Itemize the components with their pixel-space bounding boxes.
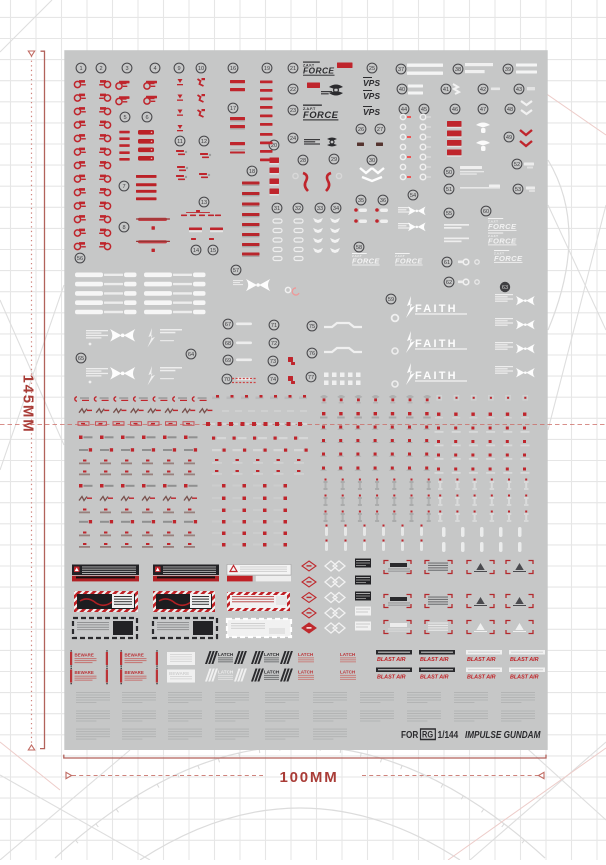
- svg-text:BLAST AIR: BLAST AIR: [467, 657, 496, 663]
- svg-text:27: 27: [377, 127, 383, 133]
- svg-text:FAITH: FAITH: [415, 338, 458, 350]
- svg-text:37: 37: [398, 67, 404, 73]
- svg-text:BEWARE: BEWARE: [75, 653, 94, 658]
- svg-text:75: 75: [309, 324, 315, 330]
- svg-text:LATCH: LATCH: [218, 669, 234, 674]
- svg-text:4: 4: [153, 66, 156, 72]
- svg-text:76: 76: [309, 351, 315, 357]
- svg-text:1: 1: [79, 66, 82, 72]
- svg-text:BEWARE: BEWARE: [169, 671, 189, 676]
- svg-text:5: 5: [123, 115, 126, 121]
- svg-text:18: 18: [249, 169, 255, 175]
- svg-text:72: 72: [271, 341, 277, 347]
- svg-text:73: 73: [270, 359, 276, 365]
- svg-text:36: 36: [380, 198, 386, 204]
- svg-text:46: 46: [452, 107, 458, 113]
- svg-text:45: 45: [421, 107, 427, 113]
- svg-text:34: 34: [333, 206, 339, 212]
- svg-text:48: 48: [507, 107, 513, 113]
- svg-text:59: 59: [388, 297, 394, 303]
- svg-text:BEWARE: BEWARE: [125, 653, 144, 658]
- svg-text:42: 42: [480, 87, 486, 93]
- svg-text:12: 12: [201, 139, 207, 145]
- svg-text:FORCE: FORCE: [488, 222, 517, 231]
- svg-text:FORCE: FORCE: [352, 257, 380, 266]
- svg-text:BLAST AIR: BLAST AIR: [420, 657, 449, 663]
- svg-text:56: 56: [77, 256, 83, 262]
- svg-text:28: 28: [300, 158, 306, 164]
- svg-text:67: 67: [225, 322, 231, 328]
- svg-text:51: 51: [446, 187, 452, 193]
- svg-text:57: 57: [233, 268, 239, 274]
- svg-text:9: 9: [177, 66, 180, 72]
- svg-text:23: 23: [290, 108, 296, 114]
- svg-text:10: 10: [198, 66, 204, 72]
- svg-text:17: 17: [230, 106, 236, 112]
- svg-text:IMPULSE GUNDAM: IMPULSE GUNDAM: [465, 728, 541, 740]
- svg-text:19: 19: [264, 66, 270, 72]
- svg-text:26: 26: [358, 127, 364, 133]
- svg-text:BLAST AIR: BLAST AIR: [377, 657, 406, 663]
- svg-text:52: 52: [514, 162, 520, 168]
- svg-text:61: 61: [444, 260, 450, 266]
- svg-text:64: 64: [188, 352, 194, 358]
- svg-text:70: 70: [224, 377, 230, 383]
- svg-text:BLAST AIR: BLAST AIR: [420, 675, 449, 681]
- svg-text:15: 15: [210, 248, 216, 254]
- svg-text:49: 49: [506, 135, 512, 141]
- svg-text:39: 39: [505, 67, 511, 73]
- svg-text:FORCE: FORCE: [303, 66, 334, 76]
- svg-text:1/144: 1/144: [438, 728, 459, 740]
- svg-text:35: 35: [358, 198, 364, 204]
- svg-text:VPS: VPS: [363, 78, 380, 88]
- svg-text:2: 2: [99, 66, 102, 72]
- svg-text:LATCH: LATCH: [298, 669, 314, 674]
- svg-text:65: 65: [78, 356, 84, 362]
- svg-text:FORCE: FORCE: [488, 236, 517, 245]
- svg-text:VPS: VPS: [363, 91, 380, 101]
- svg-text:RG: RG: [422, 729, 433, 740]
- svg-text:3: 3: [125, 66, 128, 72]
- svg-text:LATCH: LATCH: [264, 669, 280, 674]
- svg-text:LATCH: LATCH: [218, 652, 234, 657]
- svg-text:BLAST AIR: BLAST AIR: [510, 675, 539, 681]
- svg-text:47: 47: [480, 107, 486, 113]
- svg-text:16: 16: [230, 66, 236, 72]
- svg-text:FAITH: FAITH: [415, 303, 458, 315]
- svg-text:29: 29: [331, 157, 337, 163]
- svg-text:31: 31: [274, 206, 280, 212]
- svg-text:LATCH: LATCH: [298, 652, 314, 657]
- svg-text:7: 7: [122, 184, 125, 190]
- svg-text:44: 44: [401, 107, 407, 113]
- svg-text:69: 69: [225, 358, 231, 364]
- svg-text:VPS: VPS: [363, 107, 380, 117]
- svg-text:53: 53: [515, 187, 521, 193]
- svg-text:41: 41: [443, 87, 449, 93]
- svg-text:FOR: FOR: [401, 728, 418, 740]
- svg-text:BEWARE: BEWARE: [125, 670, 144, 675]
- svg-text:FAITH: FAITH: [415, 370, 458, 382]
- svg-text:LATCH: LATCH: [340, 652, 356, 657]
- svg-text:30: 30: [369, 158, 375, 164]
- svg-text:21: 21: [290, 66, 296, 72]
- svg-text:33: 33: [317, 206, 323, 212]
- svg-text:FORCE: FORCE: [395, 257, 423, 266]
- svg-text:LATCH: LATCH: [340, 669, 356, 674]
- svg-text:24: 24: [290, 136, 296, 142]
- svg-text:43: 43: [516, 87, 522, 93]
- svg-text:11: 11: [177, 139, 183, 145]
- svg-text:60: 60: [483, 209, 489, 215]
- svg-text:BLAST AIR: BLAST AIR: [377, 675, 406, 681]
- svg-text:25: 25: [369, 66, 375, 72]
- svg-text:63: 63: [502, 285, 508, 291]
- svg-text:71: 71: [271, 323, 277, 329]
- svg-text:22: 22: [290, 87, 296, 93]
- svg-text:62: 62: [446, 280, 452, 286]
- svg-text:LATCH: LATCH: [264, 652, 280, 657]
- svg-text:14: 14: [193, 248, 199, 254]
- svg-text:BLAST AIR: BLAST AIR: [510, 657, 539, 663]
- svg-text:54: 54: [410, 193, 416, 199]
- svg-text:13: 13: [201, 200, 207, 206]
- svg-text:68: 68: [225, 341, 231, 347]
- svg-text:8: 8: [122, 225, 125, 231]
- svg-text:100MM: 100MM: [279, 769, 338, 786]
- svg-text:6: 6: [145, 115, 148, 121]
- svg-text:58: 58: [356, 245, 362, 251]
- svg-text:40: 40: [399, 87, 405, 93]
- svg-text:77: 77: [308, 375, 314, 381]
- svg-text:BEWARE: BEWARE: [75, 670, 94, 675]
- svg-text:50: 50: [446, 170, 452, 176]
- svg-text:55: 55: [446, 211, 452, 217]
- svg-text:38: 38: [455, 67, 461, 73]
- svg-text:74: 74: [270, 377, 276, 383]
- svg-text:32: 32: [295, 206, 301, 212]
- svg-text:FORCE: FORCE: [494, 254, 523, 263]
- svg-text:BLAST AIR: BLAST AIR: [467, 675, 496, 681]
